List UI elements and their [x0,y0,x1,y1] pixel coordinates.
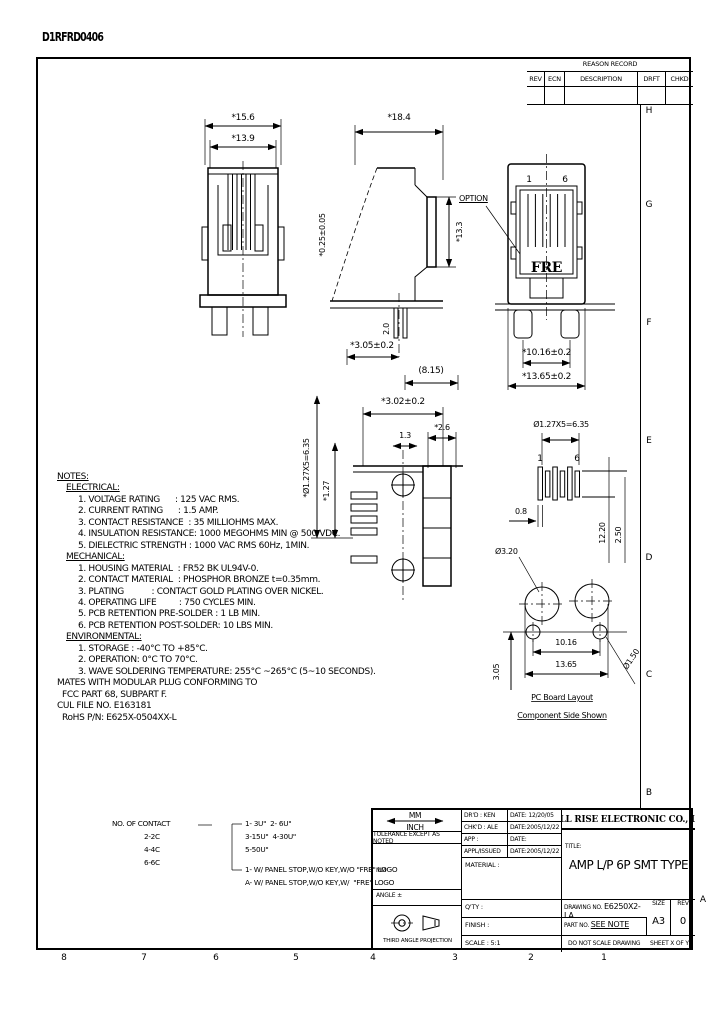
revision-record-table: REASON RECORD REV ECN DESCRIPTION DRFT C… [527,57,693,105]
chkd-date: DATE:2005/12/22 [508,822,562,834]
dim-pcb-vert: 3.05 [492,663,501,680]
units-cell: MM INCH [373,810,462,832]
rev-label: REV [671,900,695,908]
projection-cell: THIRD ANGLE PROJECTION [373,906,462,950]
note-line: 4. OPERATING LIFE : 750 CYCLES MIN. [57,598,376,609]
note-line: 5. PCB RETENTION PRE-SOLDER : 1 LB MIN. [57,609,376,620]
plating-option: 1- 3U" 2- 6U" [245,819,291,828]
part-number-legend: NO. OF CONTACT 2-2C 4-4C 6-6C 1- 3U" 2- … [80,818,390,898]
revision-empty-cell [638,87,666,104]
pad-pin-last: 6 [574,454,580,464]
dim-side-contact: *0.25±0.05 [318,213,327,257]
contacts-option: 4-4C [144,845,160,854]
zone-number: 5 [290,953,302,963]
revision-empty-cell [545,87,565,104]
dim-face-body-width: *13.65±0.2 [522,372,571,382]
tolerance-table: MM .X ±0.38 ± .XX ±0.25 ± .XXX ±0.025 ± [373,844,462,890]
revision-empty-cell [565,87,638,104]
dim-pad-width: 0.8 [515,507,527,516]
note-line: 1. VOLTAGE RATING : 125 VAC RMS. [57,495,376,506]
pcb-caption-line2: Component Side Shown [517,711,607,720]
zone-letter: H [643,106,655,116]
contacts-header: NO. OF CONTACT [112,819,170,828]
qty-cell: Q'TY : [462,900,562,918]
zone-letter: F [643,318,655,328]
appl-issued-label: APPL/ISSUED [462,846,508,858]
document-code: D1RFRD0406 [42,30,103,44]
title-cell: TITLE: AMP L/P 6P SMT TYPE [562,830,695,900]
pin-number-first: 1 [526,175,531,185]
dim-smt-b: *2.6 [434,423,450,432]
dim-front-inner-width: *13.9 [231,134,255,144]
notes-block: NOTES: ELECTRICAL: 1. VOLTAGE RATING : 1… [57,472,376,724]
note-line: RoHS P/N: E625X-0504XX-L [57,713,376,724]
note-line: 1. STORAGE : -40°C TO +85°C. [57,644,376,655]
units-mm: MM [409,811,421,820]
note-line: 3. CONTACT RESISTANCE : 35 MILLIOHMS MAX… [57,518,376,529]
tolerance-note: TOLERANCE EXCEPT AS NOTED [373,832,462,844]
note-line: 2. CONTACT MATERIAL : PHOSPHOR BRONZE t=… [57,575,376,586]
dim-side-depth: *18.4 [387,113,411,123]
drawing-sheet: D1RFRD0406 H G F E D C B A 8 7 6 5 4 3 2… [0,0,720,1012]
chkd-label: CHK'D : ALE [462,822,508,834]
dim-side-height: *13.3 [455,222,464,243]
zone-letter: A [697,895,709,905]
zone-number: 1 [598,953,610,963]
size-label: SIZE [647,900,671,908]
revision-table-title: REASON RECORD [527,57,693,71]
company-name: FULL RISE ELECTRONIC CO., LTD [562,810,695,830]
third-angle-projection-icon [391,912,443,934]
pcb-layout-view: Ø3.20 10.16 13.65 3.05 Ø1.50 PC Board La… [485,542,685,737]
title-label: TITLE: [565,844,581,850]
size-value: A3 [647,908,671,936]
zone-letter: G [643,200,655,210]
dim-smt-pad-len: *3.02±0.2 [381,397,425,407]
note-line: CUL FILE NO. E163181 [57,701,376,712]
dim-side-pin: 2.0 [382,323,391,335]
environmental-header: ENVIRONMENTAL: [57,632,376,643]
projection-label: THIRD ANGLE PROJECTION [373,938,462,944]
note-line: 2. OPERATION: 0°C TO 70°C. [57,655,376,666]
tolerance-header: MM [376,866,458,877]
appl-issued-date: DATE:2005/12/22 [508,846,562,858]
zone-number: 7 [138,953,150,963]
app-label: APP : [462,834,508,846]
drawing-no-cell: DRAWING NO. E6250X2-LA [562,900,647,918]
note-line: MATES WITH MODULAR PLUG CONFORMING TO [57,678,376,689]
scale-cell: SCALE : 5:1 [462,936,562,952]
zone-letter: B [643,788,655,798]
note-line: 4. INSULATION RESISTANCE: 1000 MEGOHMS M… [57,529,376,540]
drd-label: DR'D : KEN [462,810,508,822]
finish-cell: FINISH : [462,918,562,936]
notes-title: NOTES: [57,472,376,483]
revision-col-desc: DESCRIPTION [565,72,638,86]
dim-front-outer-width: *15.6 [231,113,255,123]
revision-empty-cell [527,87,545,104]
note-line: 5. DIELECTRIC STRENGTH : 1000 VAC RMS 60… [57,541,376,552]
revision-col-drft: DRFT [638,72,666,86]
dim-side-standoff: *3.05±0.2 [350,341,394,351]
note-line: 1. HOUSING MATERIAL : FR52 BK UL94V-0. [57,564,376,575]
do-not-scale-note: DO NOT SCALE DRAWING [568,940,640,947]
units-inch: INCH [406,823,424,832]
dim-pcb-inner: 10.16 [555,638,577,647]
drawing-title: AMP L/P 6P SMT TYPE [562,858,695,872]
note-line: 2. CURRENT RATING : 1.5 AMP. [57,506,376,517]
dim-pad-depth: 12.20 [598,522,607,544]
dim-smt-a: 1.3 [399,431,411,440]
zone-number: 2 [525,953,537,963]
part-no-value: SEE NOTE [591,920,629,929]
dim-pcb-outer: 13.65 [555,660,577,669]
front-view: *15.6 *13.9 [190,105,300,340]
bottom-strip: DO NOT SCALE DRAWING SHEET X OF Y [562,936,695,952]
note-line: 3. PLATING : CONTACT GOLD PLATING OVER N… [57,587,376,598]
contacts-option: 6-6C [144,858,160,867]
dim-hole-big: Ø3.20 [495,546,518,556]
note-line: FCC PART 68, SUBPART F. [57,690,376,701]
revision-col-ecn: ECN [545,72,565,86]
pin-number-last: 6 [562,175,568,185]
side-view: *18.4 *13.3 *0.25±0.05 2.0 *3.05±0.2 (8.… [315,105,485,397]
pcb-caption-line1: PC Board Layout [531,693,593,702]
dim-face-leg-span: *10.16±0.2 [522,348,571,358]
app-date: DATE: [508,834,562,846]
drd-date: DATE: 12/20/05 [508,810,562,822]
angle-tolerance: ANGLE ± [373,890,462,906]
rev-value: 0 [671,908,695,936]
pad-pin-first: 1 [537,454,542,464]
plating-option: 5-50U" [245,845,268,854]
zone-number: 4 [367,953,379,963]
contacts-option: 2-2C [144,832,160,841]
dim-side-setback: (8.15) [418,366,443,376]
sheet-indicator: SHEET X OF Y [650,940,689,947]
revision-col-chkd: CHKD [666,72,693,86]
note-line: 3. WAVE SOLDERING TEMPERATURE: 255°C ~26… [57,667,376,678]
dim-pads-pitch-total: Ø1.27X5=6.35 [533,419,589,429]
dim-hole-small: Ø1.50 [620,647,641,672]
dim-pad-depth2: 2.50 [614,526,623,543]
plating-option: 3-15U" 4-30U" [245,832,296,841]
zone-number: 6 [210,953,222,963]
mechanical-header: MECHANICAL: [57,552,376,563]
electrical-header: ELECTRICAL: [57,483,376,494]
title-block: MM INCH TOLERANCE EXCEPT AS NOTED MM .X … [371,808,693,950]
note-line: 6. PCB RETENTION POST-SOLDER: 10 LBS MIN… [57,621,376,632]
zone-number: 8 [58,953,70,963]
material-cell: MATERIAL : [462,858,562,900]
revision-empty-cell [666,87,693,104]
revision-col-rev: REV [527,72,545,86]
part-no-cell: PART NO. SEE NOTE [562,918,647,936]
zone-number: 3 [449,953,461,963]
face-view: 1 6 FRE *10.16±0.2 *13.65±0.2 [495,152,620,390]
